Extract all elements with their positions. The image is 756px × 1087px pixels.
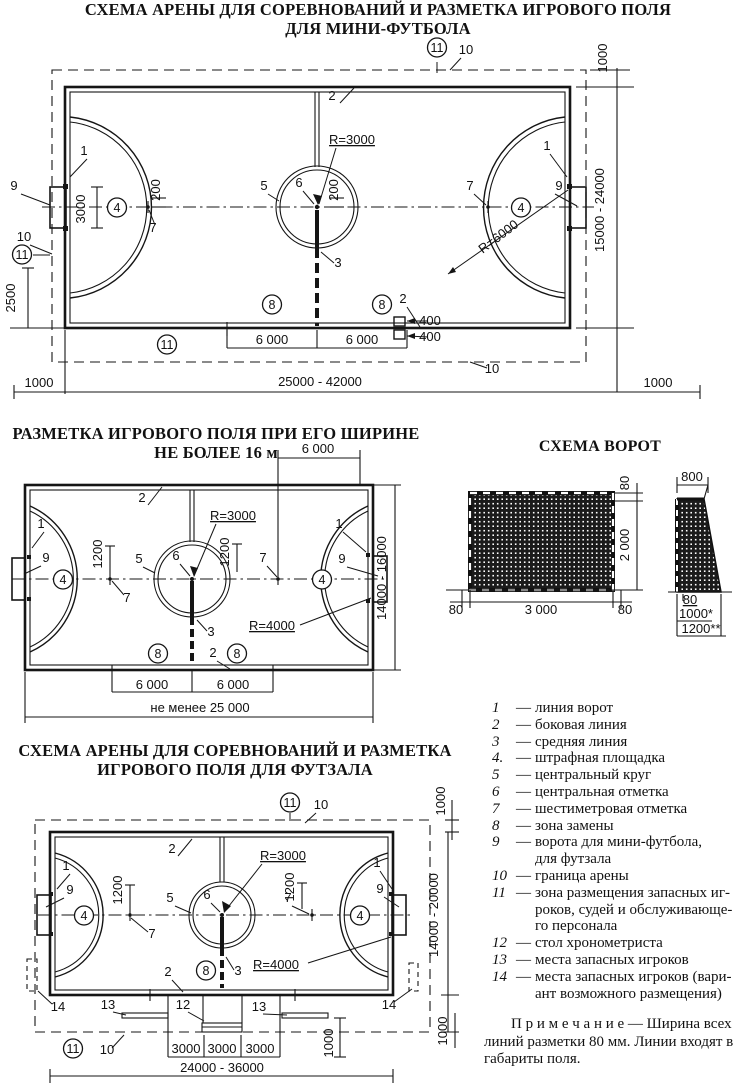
dimension-label: 2 [138,490,145,505]
ref-number-label: 4 [60,573,67,587]
legend-item: 1—линия ворот [492,700,754,717]
legend-item-dash: — [516,801,535,818]
legend-item: 5—центральный круг [492,767,754,784]
legend-item-number: 5 [492,767,516,784]
legend-item-dash: — [516,700,535,717]
dimension-label: 5 [166,890,173,905]
dimension-label: 9 [555,178,562,193]
dimension-label: 6 [203,887,210,902]
ref-number-label: 11 [16,248,29,262]
legend-item-text: ворота для мини-футбола, для футзала [535,834,754,868]
ref-number-label: 8 [269,298,276,312]
goal-side-view [668,499,732,592]
legend-item-text: центральная отметка [535,784,754,801]
legend-item-dash: — [516,818,535,835]
dimension-label: 3000 [73,195,88,224]
diagram-goal-scheme: 800802 000803 00080801000*1200** [440,455,756,670]
legend-item: 8—зона замены [492,818,754,835]
legend-item-dash: — [516,784,535,801]
dimension-label: 9 [376,881,383,896]
legend: 1—линия ворот2—боковая линия3—средняя ли… [492,700,754,1002]
legend-item-number: 1 [492,700,516,717]
legend-item-dash: — [516,952,535,969]
title-mini-football-line1: СХЕМА АРЕНЫ ДЛЯ СОРЕВНОВАНИЙ И РАЗМЕТКА … [0,0,756,19]
goal-front-view [446,493,643,590]
bench-left [122,1013,168,1018]
dimension-label: 1200 [217,538,232,567]
dimension-label: 3 000 [525,602,558,617]
dimension-label: 6 [295,175,302,190]
legend-item-text: стол хронометриста [535,935,754,952]
document-canvas: СХЕМА АРЕНЫ ДЛЯ СОРЕВНОВАНИЙ И РАЗМЕТКА … [0,0,756,1087]
ref-number-label: 11 [431,41,444,55]
leader-lines [38,813,412,1048]
dimension-label: 200 [326,179,341,201]
six-meter-mark-left [146,205,150,209]
dimension-label: 1 [335,516,342,531]
six-meter-mark-left [108,577,112,581]
legend-item-text: граница арены [535,868,754,885]
dimension-label: 2 [164,964,171,979]
bench-alt-right [409,963,418,991]
dimension-label: 1200** [681,621,720,636]
dimension-label: 400 [419,313,441,328]
legend-item: 13—места запасных игроков [492,952,754,969]
legend-item: 14—места запасных игроков (вари- ант воз… [492,969,754,1003]
dimension-label: 6 [172,548,179,563]
six-meter-mark-right [310,913,314,917]
dimension-label: 10 [459,42,473,57]
dimension-label: 3 [234,963,241,978]
dimension-label: 10 [100,1042,114,1057]
dimension-label: 2 [328,88,335,103]
goal-net-side [677,499,721,592]
title-futsal-line2: ИГРОВОГО ПОЛЯ ДЛЯ ФУТЗАЛА [0,760,470,779]
legend-item: 10—граница арены [492,868,754,885]
diagram1-labels: 111010002R=300011993000442002005677R=600… [3,38,672,390]
dimension-label: 13 [252,999,266,1014]
legend-item-dash: — [516,885,535,902]
dimension-label: 9 [42,550,49,565]
dimension-label: R=3000 [329,132,375,147]
dimension-label: 9 [10,178,17,193]
center-mark [315,205,319,209]
ref-number-label: 8 [379,298,386,312]
ref-number-label: 4 [319,573,326,587]
dimension-label: 1000 [321,1029,336,1058]
ref-number-label: 4 [518,201,525,215]
legend-item-number: 9 [492,834,516,851]
dimension-label: 10 [17,229,31,244]
dimension-label: 1000 [644,375,673,390]
dimension-label: R=3000 [210,508,256,523]
legend-item-dash: — [516,750,535,767]
note-text: П р и м е ч а н и е — Ширина всех линий … [484,1016,733,1067]
dimension-label: R=4000 [253,957,299,972]
dimension-label: 5 [135,551,142,566]
ref-number-label: 4 [357,909,364,923]
dimension-label: 9 [338,551,345,566]
dimension-label: 5 [260,178,267,193]
legend-item-text: средняя линия [535,734,754,751]
dimension-label: 10 [485,361,499,376]
legend-item: 7—шестиметровая отметка [492,801,754,818]
legend-item: 4.—штрафная площадка [492,750,754,767]
title-futsal-line1: СХЕМА АРЕНЫ ДЛЯ СОРЕВНОВАНИЙ И РАЗМЕТКА [0,741,470,760]
bench-right [282,1013,328,1018]
legend-item-text: места запасных игроков [535,952,754,969]
dimension-label: 80 [449,602,463,617]
dimension-label: 3 [334,255,341,270]
dimension-label: 1000* [679,606,713,621]
six-meter-mark-left [128,913,132,917]
diagram-futsal-arena: 111010002R=3000119944120012005677R=40002… [0,785,490,1087]
legend-item-dash: — [516,734,535,751]
legend-item-number: 2 [492,717,516,734]
dimension-label: 3000 [208,1041,237,1056]
dimension-label: 9 [66,882,73,897]
dimension-label: R=3000 [260,848,306,863]
goal-net [470,493,613,590]
dimension-label: 1000 [435,1017,450,1046]
six-meter-mark-right [276,577,280,581]
dimension-label: 2500 [3,284,18,313]
dimension-label: 3000 [172,1041,201,1056]
diagram-mini-football-arena: 111010002R=300011993000442002005677R=600… [0,40,756,404]
diagram2-labels: 6 0002R=300011994412001200567714000 - 16… [37,441,389,715]
dimension-label: 7 [123,590,130,605]
legend-item-dash: — [516,935,535,952]
dimension-label: 6 000 [256,332,289,347]
legend-item-dash: — [516,868,535,885]
dimension-label: 13 [101,997,115,1012]
ref-number-label: 11 [161,338,174,352]
leader-lines [21,58,577,368]
ref-number-label: 4 [114,201,121,215]
dimension-label: 80 [617,476,632,490]
legend-item-text: штрафная площадка [535,750,754,767]
ref-number-label: 8 [155,647,162,661]
title-futsal: СХЕМА АРЕНЫ ДЛЯ СОРЕВНОВАНИЙ И РАЗМЕТКА … [0,741,470,779]
dimension-label: 1 [62,858,69,873]
legend-item: 12—стол хронометриста [492,935,754,952]
legend-item-text: зона замены [535,818,754,835]
ref-number-label: 11 [284,796,297,810]
legend-item-number: 12 [492,935,516,952]
dimension-label: 1 [543,138,550,153]
dimension-label: 2 000 [617,529,632,562]
legend-item-dash: — [516,767,535,784]
dimension-label: 25000 - 42000 [278,374,362,389]
dimension-lines [25,450,401,723]
dimension-label: 15000 - 24000 [592,168,607,252]
dimension-label: 80 [683,592,697,607]
dimension-label: R=4000 [249,618,295,633]
dimension-label: 6 000 [217,677,250,692]
legend-item-number: 13 [492,952,516,969]
dimension-label: 6 000 [136,677,169,692]
dimension-label: 14000 - 16000 [374,536,389,620]
dimension-label: 1 [37,516,44,531]
dimension-label: 7 [148,926,155,941]
arena-boundary [35,820,430,1032]
legend-item-text: шестиметровая отметка [535,801,754,818]
dimension-label: 1 [373,855,380,870]
dimension-label: 14 [382,997,396,1012]
dimension-label: 2 [209,645,216,660]
ref-number-label: 8 [234,647,241,661]
dimension-label: 800 [681,469,703,484]
bench-zone [27,959,418,1035]
dimension-label: R=6000 [475,217,521,257]
dimension-label: 14000 - 20000 [426,873,441,957]
dimension-label: 1200 [110,876,125,905]
ref-number-label: 11 [67,1042,80,1056]
dimension-label: 1000 [433,787,448,816]
legend-item-dash: — [516,834,535,851]
legend-item-dash: — [516,969,535,986]
legend-item: 6—центральная отметка [492,784,754,801]
legend-item-text: места запасных игроков (вари- ант возмож… [535,969,754,1003]
legend-item-text: боковая линия [535,717,754,734]
note: П р и м е ч а н и е — Ширина всех линий … [484,1016,754,1069]
dimension-label: 6 000 [346,332,379,347]
legend-item-number: 14 [492,969,516,986]
legend-item-dash: — [516,717,535,734]
title-mini-football: СХЕМА АРЕНЫ ДЛЯ СОРЕВНОВАНИЙ И РАЗМЕТКА … [0,0,756,38]
dimension-label: 400 [419,329,441,344]
legend-item-number: 10 [492,868,516,885]
dimension-label: 7 [466,178,473,193]
title-goal-scheme: СХЕМА ВОРОТ [490,437,710,456]
dimension-label: 200 [148,179,163,201]
dimension-label: 2 [168,841,175,856]
dimension-label: 80 [618,602,632,617]
dimension-label: 7 [259,550,266,565]
dimension-label: 1000 [25,375,54,390]
diagram-width16-field: 6 0002R=300011994412001200567714000 - 16… [0,440,470,740]
legend-item-number: 11 [492,885,516,902]
dimension-label: 7 [284,890,291,905]
dimension-label: 3000 [246,1041,275,1056]
legend-item-number: 7 [492,801,516,818]
dimension-label: 24000 - 36000 [180,1060,264,1075]
title-mini-football-line2: ДЛЯ МИНИ-ФУТБОЛА [0,19,756,38]
ref-number-label: 4 [81,909,88,923]
legend-item-text: линия ворот [535,700,754,717]
legend-item-number: 6 [492,784,516,801]
dimension-label: 3 [207,624,214,639]
dimension-label: 14 [51,999,65,1014]
ref-number-label: 8 [203,964,210,978]
dimension-label: 2 [399,291,406,306]
dimension-label: 12 [176,997,190,1012]
legend-item: 3—средняя линия [492,734,754,751]
dimension-label: 1000 [595,44,610,73]
dimension-label: 10 [314,797,328,812]
dimension-label: не менее 25 000 [150,700,249,715]
legend-item-number: 8 [492,818,516,835]
legend-item-number: 4. [492,750,516,767]
legend-item-text: зона размещения запасных иг- роков, суде… [535,885,754,935]
legend-item-number: 3 [492,734,516,751]
dimension-label: 1 [80,143,87,158]
dimension-label: 7 [149,220,156,235]
dimension-label: 6 000 [302,441,335,456]
legend-item: 2—боковая линия [492,717,754,734]
dimension-label: 1200 [90,540,105,569]
legend-item: 9—ворота для мини-футбола, для футзала [492,834,754,868]
legend-item-text: центральный круг [535,767,754,784]
legend-item: 11—зона размещения запасных иг- роков, с… [492,885,754,935]
six-meter-mark-right [486,205,490,209]
